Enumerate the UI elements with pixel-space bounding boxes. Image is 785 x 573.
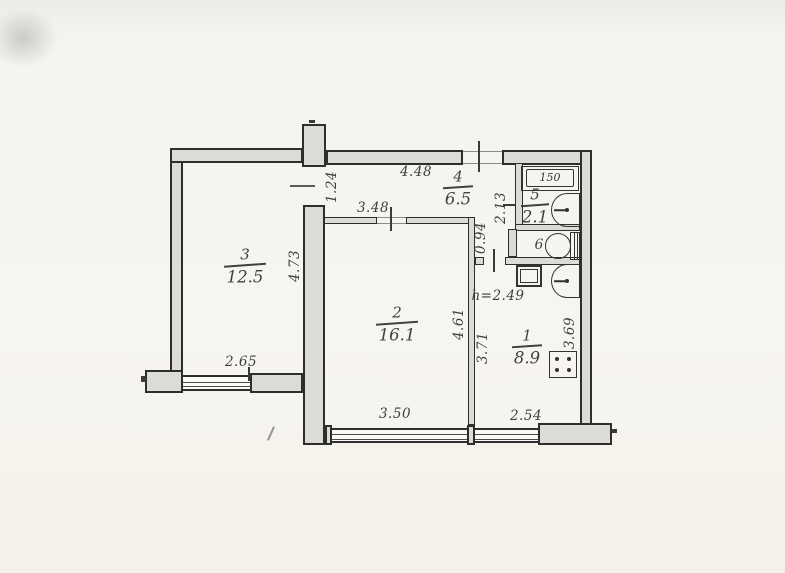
- dim-passage: 0.94: [473, 222, 489, 254]
- wall-top-room3: [170, 148, 303, 163]
- scan-shadow: [0, 8, 58, 68]
- room-3-area: 12.5: [224, 268, 266, 285]
- wall-room2-top-b: [406, 217, 475, 224]
- dim-room2-window: 3.50: [379, 406, 411, 422]
- stray-pen-mark: [267, 426, 275, 441]
- wall-chimney-column: [302, 124, 326, 167]
- room-3-number: 3: [224, 247, 266, 262]
- wall-window-post: [467, 425, 475, 445]
- toilet-cistern: [570, 232, 580, 260]
- wall-right-outer: [580, 150, 592, 425]
- kitchen-sink: [551, 264, 580, 298]
- room-5-label: 5 2.1: [521, 187, 549, 225]
- room-6-label: 6: [535, 237, 544, 253]
- vent-shaft: [516, 265, 542, 287]
- room-1-number: 1: [512, 328, 542, 343]
- dim-room3-window: 2.65: [225, 354, 257, 370]
- wall-left-outer: [170, 148, 183, 375]
- dim-kitchen-window: 2.54: [510, 408, 542, 424]
- tick-entry-door: [478, 141, 480, 172]
- wall-bottom-right-block: [538, 423, 612, 445]
- room-4-number: 4: [443, 169, 473, 184]
- dim-corridor-top: 4.48: [400, 164, 432, 180]
- dim-kitchen-right: 3.69: [562, 317, 578, 349]
- tick-chimney-top: [309, 120, 315, 123]
- sink-drain-icon: [565, 279, 569, 283]
- wall-wc-left: [508, 229, 517, 257]
- nub-right-block: [611, 429, 617, 433]
- bathroom-sink: [551, 193, 580, 227]
- room-2-label: 2 16.1: [376, 305, 418, 343]
- window-room3: [183, 375, 250, 391]
- entry-door-opening: [463, 151, 502, 164]
- dim-room3-side: 4.73: [287, 250, 303, 282]
- stove: [549, 351, 577, 378]
- ceiling-height-note: h=2.49: [471, 288, 524, 304]
- room-3-label: 3 12.5: [224, 247, 266, 285]
- window-room2: [332, 428, 467, 443]
- wall-room3-window-right-block: [250, 373, 303, 393]
- wall-kitchen-top-stub: [475, 257, 484, 265]
- vent-shaft-inner: [520, 269, 538, 283]
- dim-kitchen-left: 3.71: [475, 332, 491, 364]
- dim-room3-door: 1.24: [324, 171, 340, 203]
- toilet-bowl: [545, 233, 571, 259]
- wall-top-corridor: [326, 150, 463, 165]
- room-2-number: 2: [376, 305, 418, 320]
- tick-kitchen-door: [493, 249, 495, 272]
- window-kitchen: [475, 428, 538, 443]
- wall-divider-room3-room2: [303, 205, 325, 445]
- room-2-area: 16.1: [376, 326, 418, 343]
- room-4-label: 4 6.5: [443, 169, 473, 207]
- floor-plan: 150 4.48 1.24 3.48 2.13 0.94 4.73 2.65 4…: [0, 0, 785, 573]
- room-5-area: 2.1: [521, 208, 549, 225]
- wall-room2-top-a: [322, 217, 377, 224]
- room-5-number: 5: [521, 187, 549, 202]
- nub-left-block: [141, 376, 146, 382]
- dim-bath-side: 2.13: [493, 192, 509, 224]
- wall-room3-window-left-block: [145, 370, 183, 393]
- room-1-label: 1 8.9: [512, 328, 542, 366]
- room-1-area: 8.9: [512, 349, 542, 366]
- tick-dim-348: [390, 207, 392, 231]
- dim-room2-top: 3.48: [357, 200, 389, 216]
- dimline-room3-door: [290, 185, 315, 187]
- dim-room2-side: 4.61: [451, 308, 467, 340]
- sink-drain-icon: [565, 208, 569, 212]
- room-4-area: 6.5: [443, 190, 473, 207]
- wall-bottom-left-stub: [325, 425, 332, 445]
